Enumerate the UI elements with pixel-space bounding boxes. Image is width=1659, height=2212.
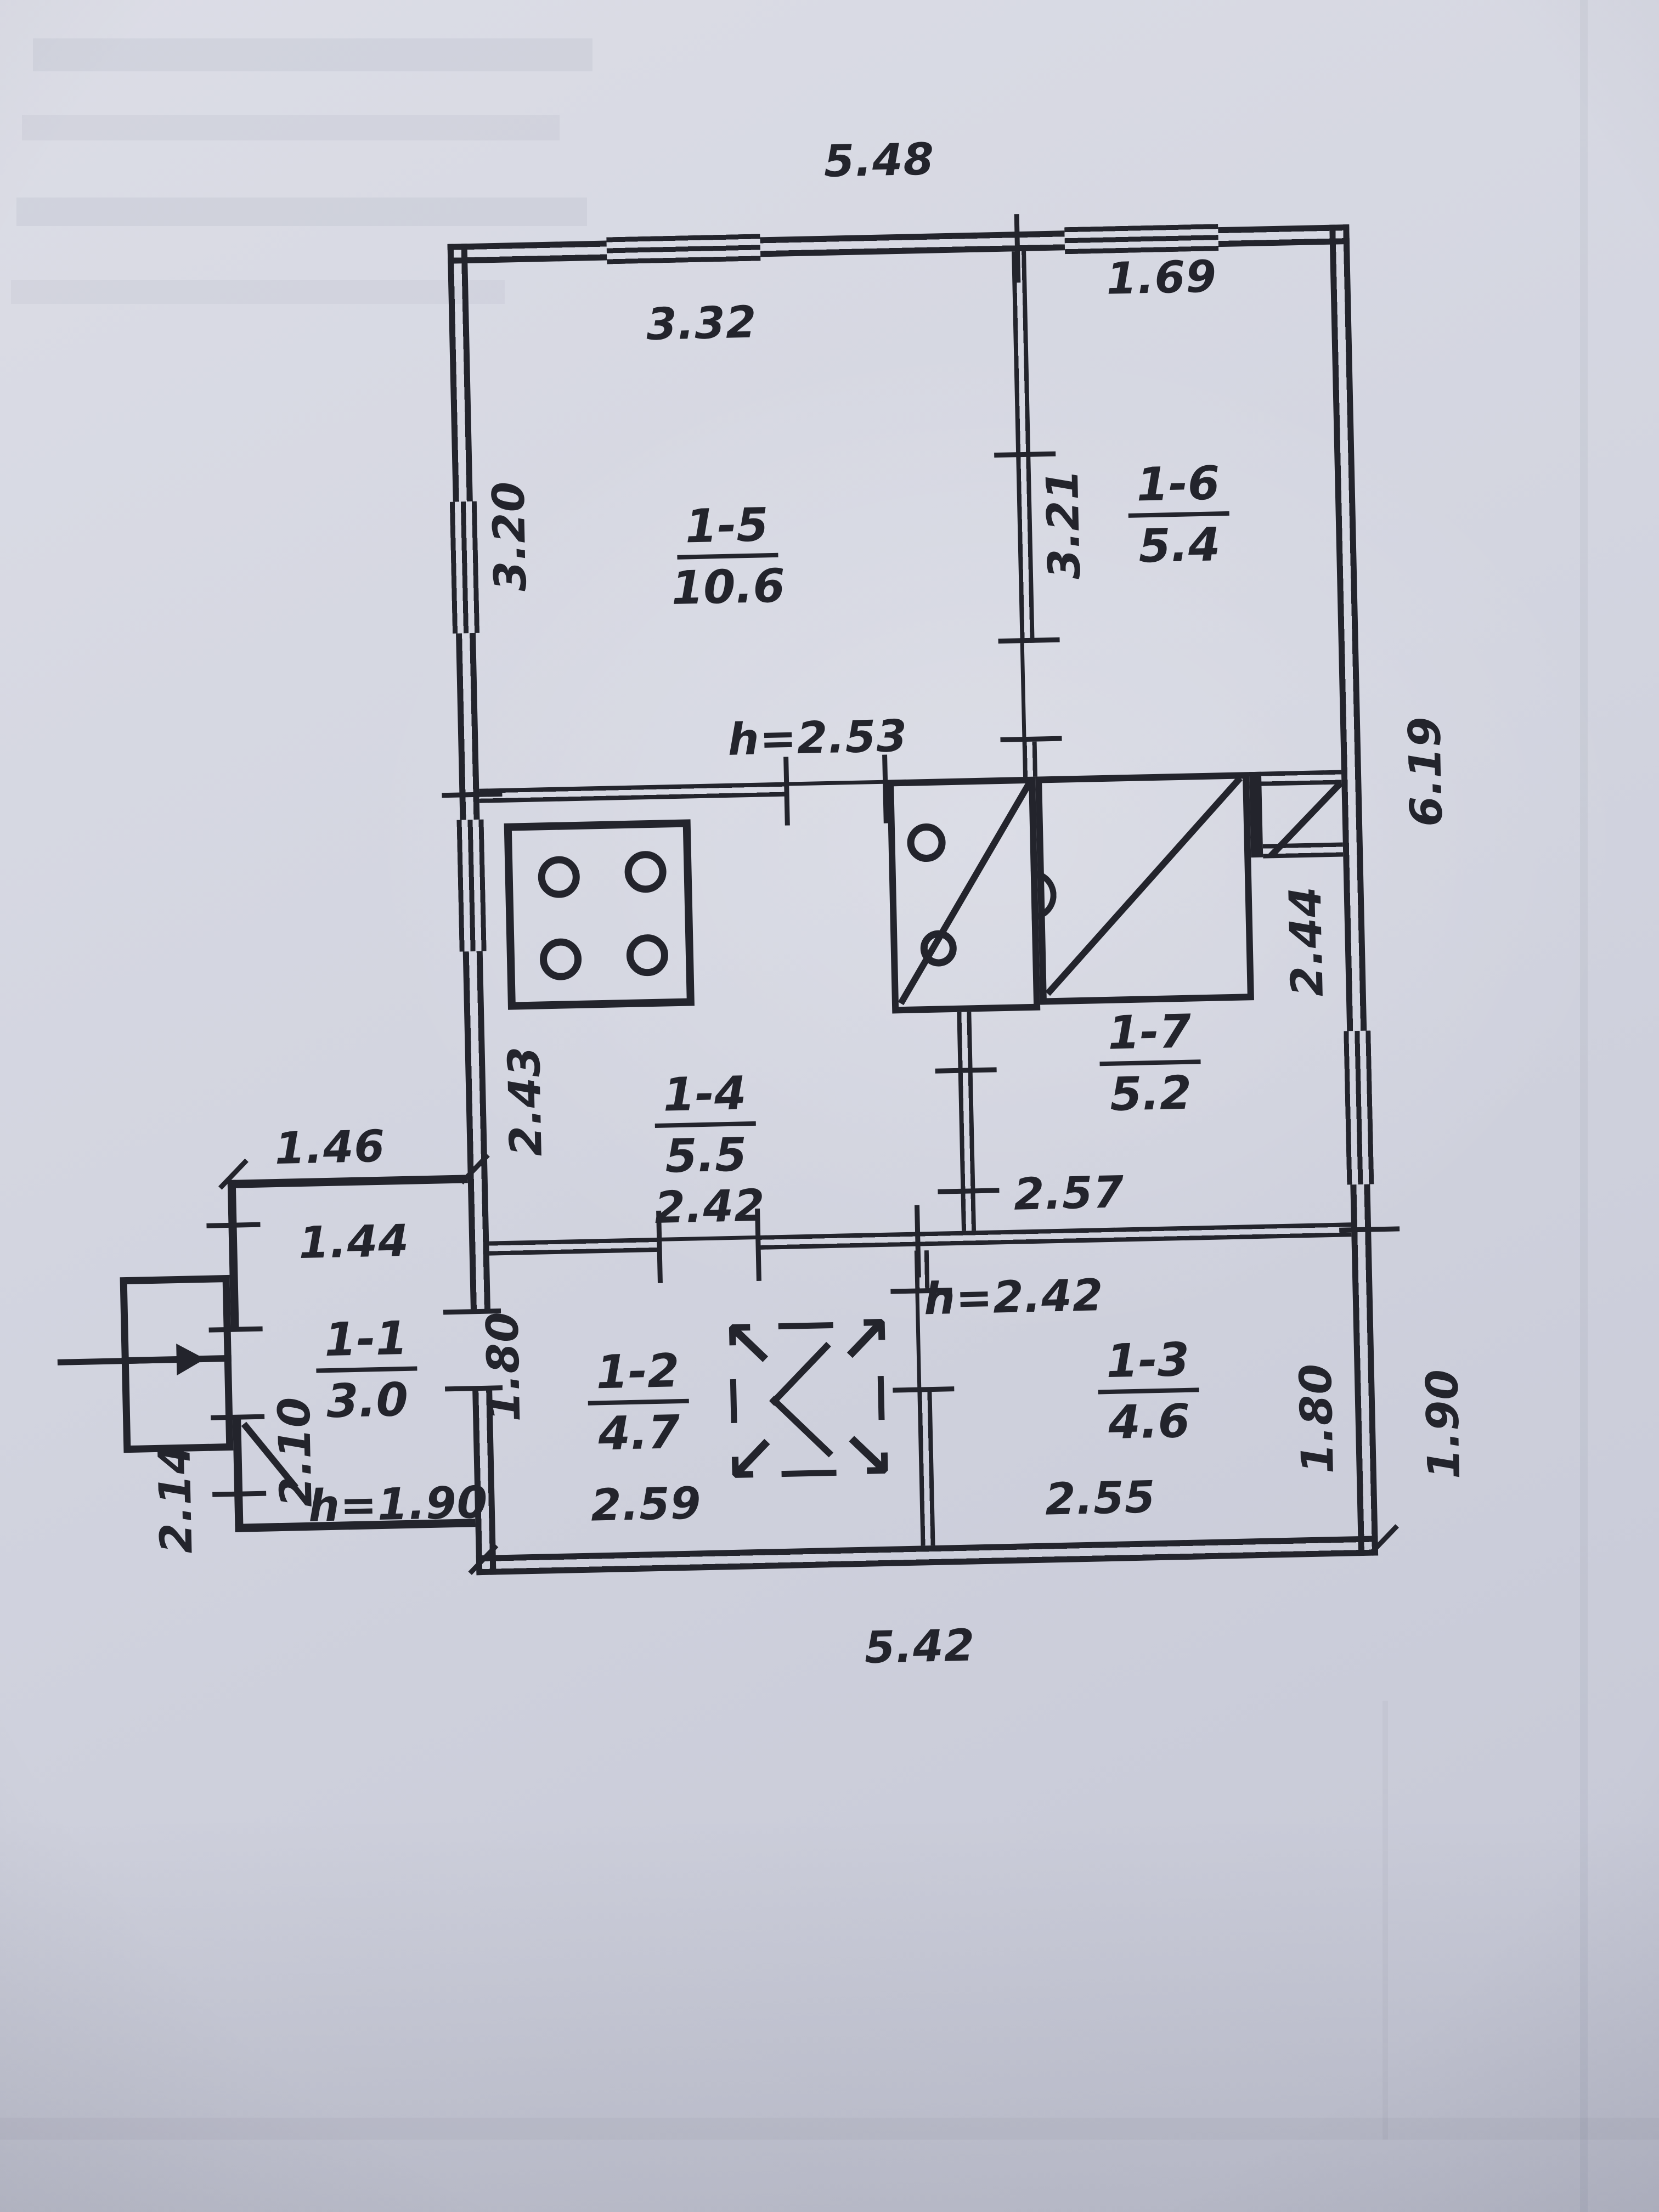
dimension-tick bbox=[1000, 736, 1062, 742]
dimension-tick bbox=[206, 1222, 260, 1228]
room-id: 1-1 bbox=[315, 1315, 417, 1373]
dimension-tick bbox=[882, 755, 889, 823]
partition-room12-room13 bbox=[917, 1391, 935, 1546]
door-lintel bbox=[788, 780, 887, 786]
dim-room15-width: 3.32 bbox=[646, 300, 757, 348]
dim-annex-height-outer: 2.14 bbox=[151, 1443, 200, 1554]
corner-arrow-icon: ↗ bbox=[837, 1307, 894, 1374]
room-label-1-5: 1-5 10.6 bbox=[669, 501, 785, 611]
hatch-dash bbox=[778, 1322, 833, 1329]
hatch-x-stroke bbox=[769, 1396, 833, 1457]
room-id: 1-5 bbox=[676, 501, 778, 560]
dim-right-upper: 6.19 bbox=[1402, 716, 1450, 827]
dimension-tick bbox=[1339, 1226, 1400, 1232]
window-top-room15 bbox=[606, 234, 760, 264]
room-id: 1-3 bbox=[1097, 1336, 1199, 1394]
dim-room13-height: 1.80 bbox=[1293, 1363, 1341, 1474]
dimension-tick bbox=[938, 1188, 999, 1194]
dimension-tick bbox=[915, 1205, 921, 1277]
room-area: 5.4 bbox=[1128, 516, 1231, 569]
dimension-tick bbox=[211, 1414, 264, 1420]
entrance-arrow-icon bbox=[176, 1343, 205, 1375]
dim-room16-height: 3.21 bbox=[1040, 469, 1088, 580]
dim-room17-height: 2.44 bbox=[1282, 885, 1330, 997]
partition-room15-room16 bbox=[1012, 251, 1035, 643]
flue-wall bbox=[957, 1012, 976, 1231]
room-area: 4.6 bbox=[1098, 1392, 1200, 1446]
dim-room17-width: 2.57 bbox=[1013, 1169, 1125, 1217]
corner-arrow-icon: ↙ bbox=[722, 1426, 778, 1493]
dim-room16-width: 1.69 bbox=[1106, 253, 1217, 302]
door-jamb-line bbox=[1020, 643, 1026, 742]
room-id: 1-2 bbox=[587, 1347, 689, 1406]
attic-hatch-icon: ↖ ↗ ↙ ↘ bbox=[729, 1321, 886, 1478]
room-label-1-1: 1-1 3.0 bbox=[315, 1315, 418, 1425]
floor-plan-drawing: ↖ ↗ ↙ ↘ bbox=[0, 0, 1659, 2212]
room-label-1-6: 1-6 5.4 bbox=[1127, 460, 1231, 569]
exterior-wall-left bbox=[463, 951, 490, 1314]
room-id: 1-4 bbox=[654, 1070, 756, 1128]
room-id: 1-6 bbox=[1127, 460, 1229, 518]
door-jamb-line bbox=[915, 1293, 921, 1392]
dim-annex-height-note: h=1.90 bbox=[308, 1480, 488, 1530]
dimension-tick bbox=[212, 1491, 266, 1497]
room-area: 5.5 bbox=[655, 1126, 757, 1180]
door-lintel bbox=[661, 1235, 760, 1242]
exterior-wall-top bbox=[448, 240, 607, 263]
floor-plan-photo: ↖ ↗ ↙ ↘ bbox=[0, 0, 1659, 2212]
room-label-1-4: 1-4 5.5 bbox=[654, 1070, 757, 1180]
dim-right-lower: 1.90 bbox=[1419, 1368, 1468, 1480]
exterior-wall-left bbox=[448, 244, 473, 502]
wall-middle-bottom-band bbox=[489, 1238, 661, 1256]
dim-bottom-width: 5.42 bbox=[864, 1622, 975, 1671]
dim-lower-hall-height-note: h=2.42 bbox=[923, 1272, 1104, 1322]
wall-under-room15 bbox=[479, 782, 788, 803]
window-right-room17 bbox=[1344, 1030, 1374, 1184]
hatch-x-stroke bbox=[769, 1342, 831, 1406]
stove-burners-icon bbox=[504, 819, 695, 1009]
room-label-1-3: 1-3 4.6 bbox=[1097, 1336, 1200, 1446]
partition-room15-room16 bbox=[1023, 742, 1037, 777]
dimension-tick bbox=[935, 1067, 997, 1073]
hatch-dash bbox=[878, 1376, 885, 1420]
dim-room12-width: 2.59 bbox=[590, 1480, 702, 1528]
dim-top-width: 5.48 bbox=[823, 136, 935, 184]
annex-wall-left bbox=[233, 1418, 244, 1532]
dim-hall-height-note: h=2.53 bbox=[727, 713, 908, 763]
dimension-tick bbox=[783, 757, 790, 825]
dim-room12-height: 1.80 bbox=[479, 1311, 528, 1422]
exterior-wall-right bbox=[1350, 1184, 1378, 1556]
dimension-tick bbox=[893, 1386, 954, 1392]
dim-room15-height: 3.20 bbox=[486, 481, 534, 592]
corner-arrow-icon: ↘ bbox=[839, 1423, 896, 1490]
hatch-dash bbox=[730, 1379, 737, 1423]
wall-notch bbox=[1249, 772, 1263, 857]
room-label-1-7: 1-7 5.2 bbox=[1098, 1008, 1201, 1118]
corner-arrow-icon: ↖ bbox=[720, 1311, 776, 1378]
room-area: 3.0 bbox=[317, 1371, 419, 1425]
dim-room13-width: 2.55 bbox=[1045, 1474, 1156, 1522]
dim-annex-width-outer: 1.46 bbox=[274, 1124, 386, 1172]
dim-room14-width: 2.42 bbox=[654, 1183, 765, 1231]
room-area: 10.6 bbox=[671, 557, 786, 611]
dimension-tick bbox=[998, 637, 1059, 644]
dim-annex-width-inner: 1.44 bbox=[298, 1218, 410, 1266]
dimension-tick bbox=[1014, 214, 1021, 283]
dimension-tick bbox=[994, 452, 1056, 458]
dimension-tick bbox=[209, 1327, 263, 1333]
annex-wall-top bbox=[228, 1175, 468, 1188]
window-top-room16 bbox=[1064, 224, 1218, 254]
room-area: 4.7 bbox=[588, 1403, 690, 1457]
room-label-1-2: 1-2 4.7 bbox=[587, 1347, 690, 1457]
wall-under-room16 bbox=[1249, 770, 1342, 787]
exterior-wall-right bbox=[1329, 224, 1367, 1031]
hatch-dash bbox=[781, 1470, 836, 1477]
dim-room14-height: 2.43 bbox=[501, 1046, 549, 1157]
room-id: 1-7 bbox=[1098, 1008, 1200, 1066]
window-left-room14 bbox=[456, 820, 486, 952]
room-area: 5.2 bbox=[1100, 1064, 1202, 1118]
window-left-room15 bbox=[450, 501, 479, 634]
wall-middle-bottom-band bbox=[760, 1222, 1351, 1250]
